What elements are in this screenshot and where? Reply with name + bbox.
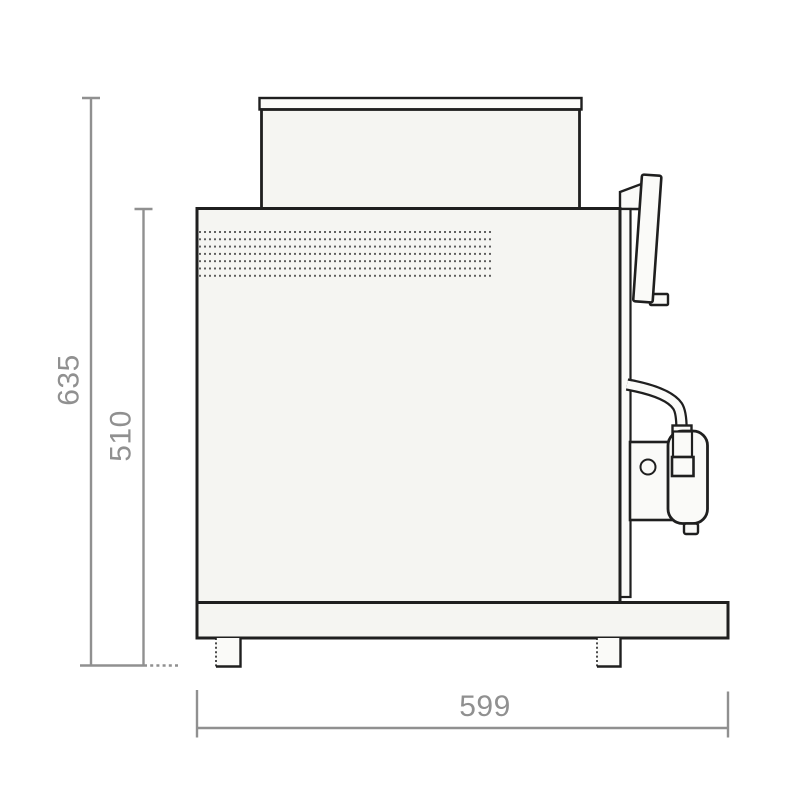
steam-handle-upper-section <box>673 432 692 458</box>
dimension-body-height: 510 <box>105 209 153 666</box>
steam-wand-assembly <box>627 385 708 535</box>
vent-grid <box>199 231 491 278</box>
depth-label: 599 <box>459 690 511 723</box>
foot-left-fill <box>216 638 241 667</box>
bean-hopper <box>260 98 582 209</box>
overall-height-label: 635 <box>53 354 86 406</box>
dimension-overall-height: 635 <box>53 98 101 666</box>
base-tray <box>197 603 728 639</box>
steam-valve-box <box>630 442 672 520</box>
body-height-label: 510 <box>105 410 138 462</box>
steam-handle-collar <box>672 457 694 476</box>
hopper-body <box>262 110 580 210</box>
dimension-depth: 599 <box>197 690 728 738</box>
hopper-lid <box>260 98 582 110</box>
steam-handle-tip <box>684 524 698 535</box>
rear-panel-strip <box>620 209 631 597</box>
diagram-canvas: 635 510 599 <box>0 0 800 800</box>
foot-right <box>597 638 621 667</box>
machine-side-view-drawing: 635 510 599 <box>0 0 800 800</box>
machine-body <box>197 209 620 603</box>
foot-left <box>216 638 241 667</box>
foot-right-fill <box>597 638 621 667</box>
